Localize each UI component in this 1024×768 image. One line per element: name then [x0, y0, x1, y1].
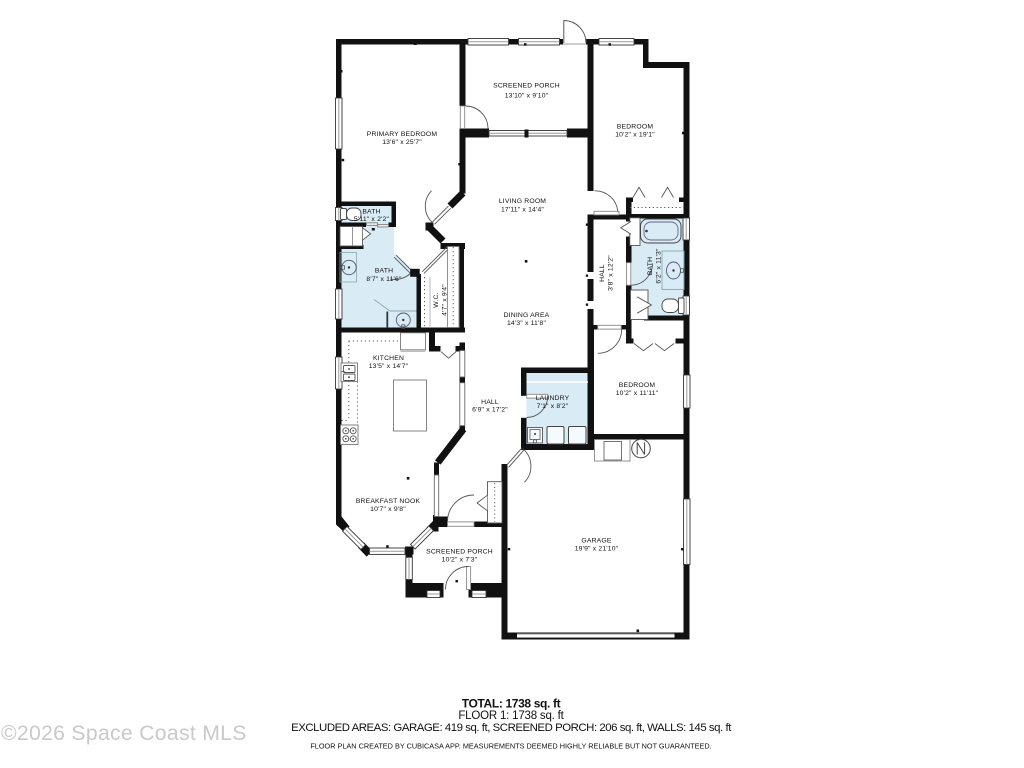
svg-text:13'6" x 25'7": 13'6" x 25'7"	[382, 139, 422, 146]
svg-text:W.C.: W.C.	[433, 292, 440, 307]
svg-text:BEDROOM: BEDROOM	[619, 382, 656, 389]
svg-text:8'7" x 11'6": 8'7" x 11'6"	[366, 276, 402, 283]
svg-text:KITCHEN: KITCHEN	[373, 355, 404, 362]
svg-text:BATH: BATH	[375, 268, 393, 275]
svg-text:17'11" x 14'4": 17'11" x 14'4"	[501, 207, 544, 214]
svg-text:EXCLUDED AREAS: GARAGE: 419 sq: EXCLUDED AREAS: GARAGE: 419 sq. ft, SCRE…	[291, 722, 732, 734]
svg-text:FLOOR PLAN CREATED BY CUBICASA: FLOOR PLAN CREATED BY CUBICASA APP. MEAS…	[310, 742, 711, 751]
svg-text:HALL: HALL	[481, 399, 499, 406]
svg-text:5'11" x 2'2": 5'11" x 2'2"	[354, 216, 390, 223]
svg-text:GARAGE: GARAGE	[581, 538, 611, 545]
svg-text:3'8" x 12'2": 3'8" x 12'2"	[607, 255, 614, 291]
svg-text:LIVING ROOM: LIVING ROOM	[499, 198, 546, 205]
svg-text:©2026 Space Coast MLS: ©2026 Space Coast MLS	[1, 722, 247, 745]
svg-text:BATH: BATH	[362, 209, 380, 216]
svg-text:13'10" x 9'10": 13'10" x 9'10"	[505, 93, 549, 100]
svg-text:10'2" x 19'1": 10'2" x 19'1"	[615, 132, 655, 139]
svg-text:LAUNDRY: LAUNDRY	[536, 395, 570, 402]
svg-text:TOTAL: 1738 sq. ft: TOTAL: 1738 sq. ft	[462, 697, 561, 711]
svg-text:10'2" x 11'11": 10'2" x 11'11"	[616, 390, 659, 397]
svg-text:4'7" x 9'4": 4'7" x 9'4"	[441, 284, 448, 316]
svg-text:SCREENED PORCH: SCREENED PORCH	[426, 549, 493, 556]
svg-text:FLOOR 1: 1738 sq. ft: FLOOR 1: 1738 sq. ft	[458, 710, 564, 722]
svg-text:BATH: BATH	[647, 257, 654, 275]
svg-text:6'2" x 11'3": 6'2" x 11'3"	[655, 248, 662, 284]
svg-text:HALL: HALL	[599, 264, 606, 282]
svg-text:BREAKFAST NOOK: BREAKFAST NOOK	[356, 498, 421, 505]
svg-text:10'2" x 7'3": 10'2" x 7'3"	[442, 557, 478, 564]
svg-text:7'1" x 8'2": 7'1" x 8'2"	[537, 403, 569, 410]
svg-text:PRIMARY BEDROOM: PRIMARY BEDROOM	[367, 131, 438, 138]
svg-text:10'7" x 9'8": 10'7" x 9'8"	[370, 506, 406, 513]
svg-text:DINING AREA: DINING AREA	[504, 312, 550, 319]
svg-text:14'3" x 11'8": 14'3" x 11'8"	[507, 320, 547, 327]
svg-text:SCREENED PORCH: SCREENED PORCH	[493, 83, 560, 90]
svg-text:13'5" x 14'7": 13'5" x 14'7"	[369, 363, 409, 370]
svg-text:19'9" x 21'10": 19'9" x 21'10"	[575, 546, 619, 553]
svg-text:BEDROOM: BEDROOM	[617, 124, 654, 131]
svg-text:6'9" x 17'2": 6'9" x 17'2"	[472, 407, 508, 414]
